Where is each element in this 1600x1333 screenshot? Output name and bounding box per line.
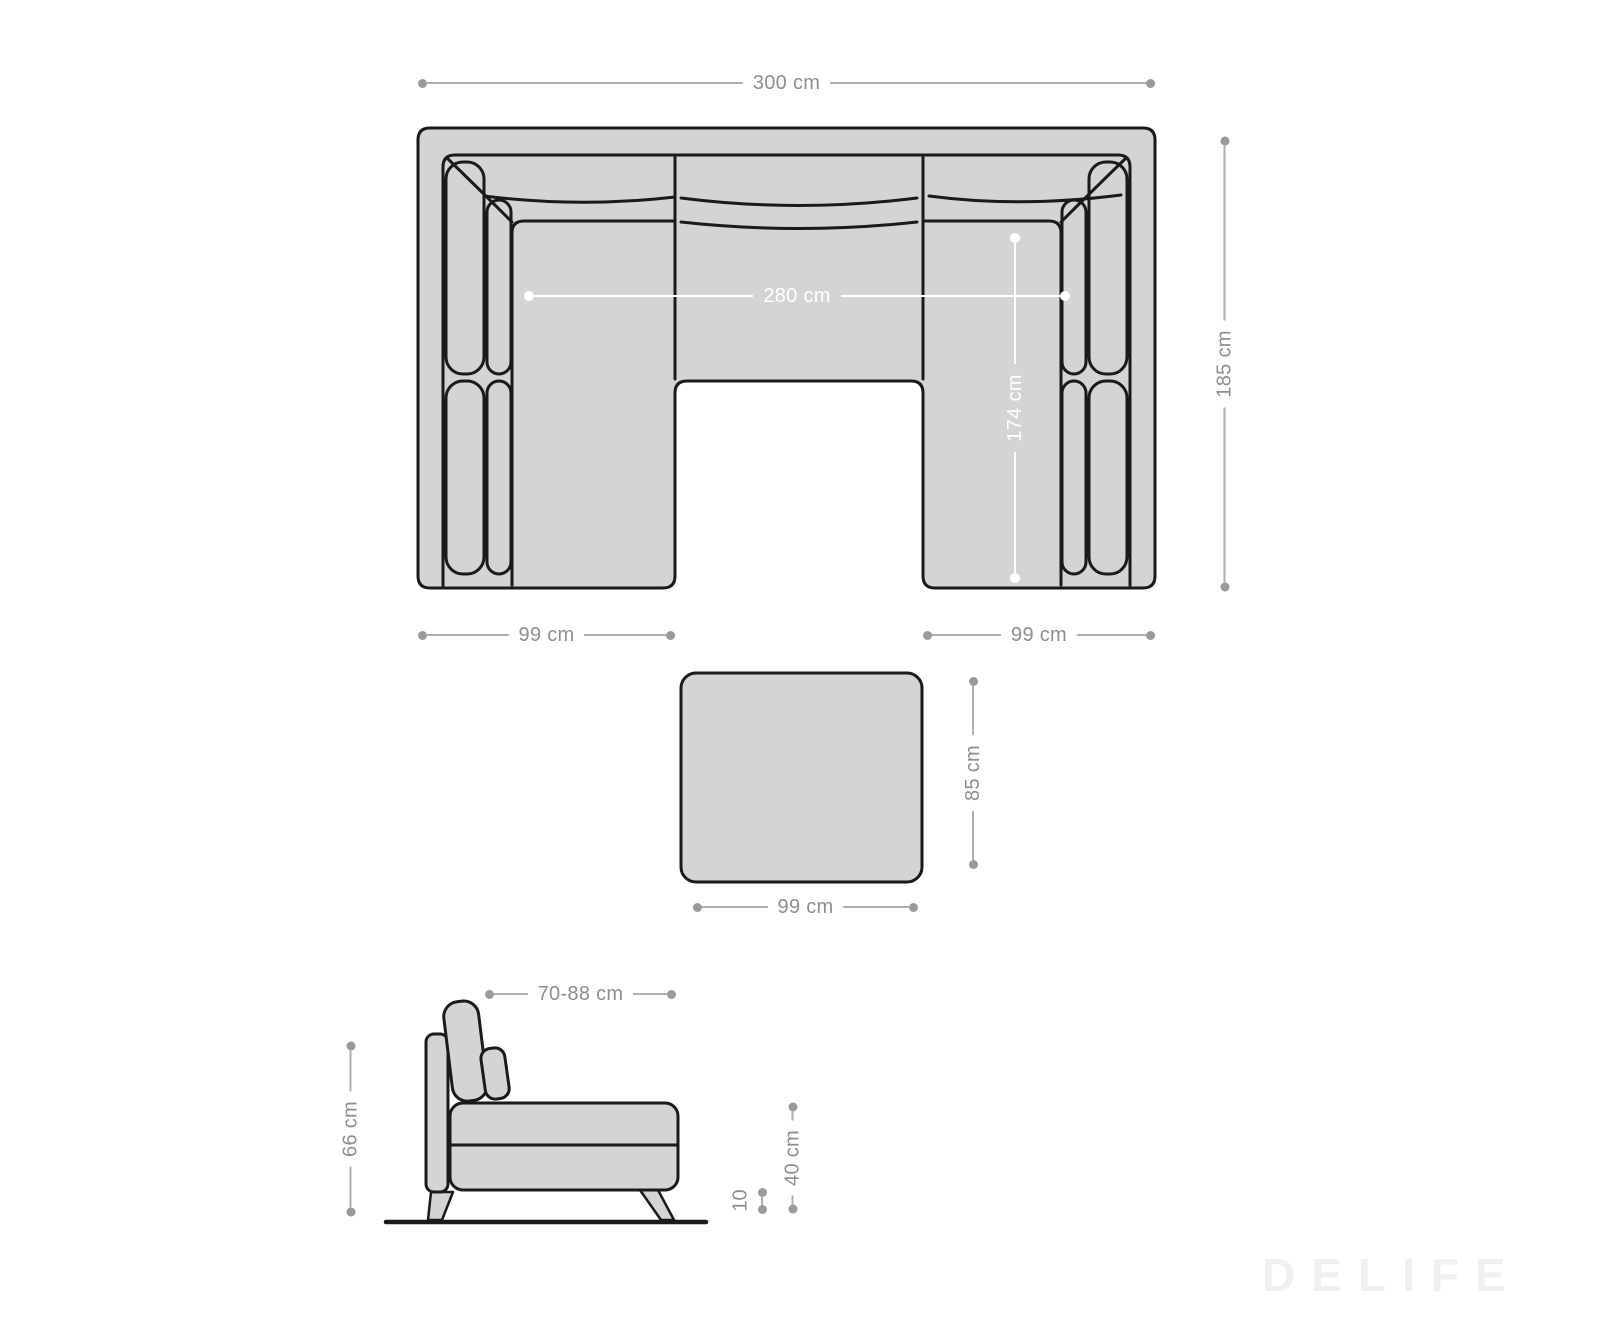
dim-line bbox=[702, 906, 768, 908]
dim-line bbox=[534, 295, 753, 297]
dim-sofa-overall-depth: 185 cm bbox=[1214, 137, 1236, 592]
dim-sofa-inner-depth: 174 cm bbox=[1004, 233, 1026, 583]
dim-label: 70-88 cm bbox=[528, 983, 634, 1006]
dim-endpoint-dot bbox=[909, 903, 918, 912]
sofa-outline bbox=[418, 128, 1155, 588]
dim-line bbox=[427, 634, 509, 636]
dim-line bbox=[1224, 145, 1226, 320]
stool-outline bbox=[681, 673, 922, 882]
dim-sofa-inner-width: 280 cm bbox=[524, 285, 1070, 307]
dim-label: 99 cm bbox=[509, 624, 585, 647]
dim-line bbox=[1224, 408, 1226, 583]
dim-line bbox=[792, 1112, 794, 1121]
dim-endpoint-dot bbox=[346, 1208, 355, 1217]
dim-leg-height-line bbox=[751, 1188, 773, 1214]
dim-stool-width: 99 cm bbox=[693, 896, 918, 918]
dim-left-recamiere-width: 99 cm bbox=[418, 624, 675, 646]
dim-line bbox=[494, 993, 528, 995]
brand-watermark: DELIFE bbox=[1262, 1248, 1522, 1302]
dim-endpoint-dot bbox=[346, 1042, 355, 1051]
dim-endpoint-dot bbox=[1146, 631, 1155, 640]
dim-endpoint-dot bbox=[758, 1188, 767, 1197]
dim-endpoint-dot bbox=[1060, 291, 1070, 301]
dim-label: 99 cm bbox=[768, 896, 844, 919]
dim-line bbox=[584, 634, 666, 636]
dim-line bbox=[1014, 243, 1016, 364]
rear-leg bbox=[428, 1192, 453, 1220]
stool-top-view-drawing bbox=[681, 673, 922, 882]
dim-line bbox=[633, 993, 667, 995]
dim-label: 99 cm bbox=[1001, 624, 1077, 647]
dim-label: 85 cm bbox=[962, 735, 985, 811]
dim-endpoint-dot bbox=[1010, 233, 1020, 243]
dim-endpoint-dot bbox=[485, 990, 494, 999]
dim-label: 185 cm bbox=[1213, 320, 1236, 407]
dim-line bbox=[427, 82, 743, 84]
back-panel bbox=[426, 1034, 448, 1192]
dim-label: 280 cm bbox=[753, 285, 840, 308]
dim-endpoint-dot bbox=[524, 291, 534, 301]
dim-endpoint-dot bbox=[667, 990, 676, 999]
dim-line bbox=[830, 82, 1146, 84]
dim-line bbox=[350, 1051, 352, 1092]
dim-endpoint-dot bbox=[418, 79, 427, 88]
dim-label: 300 cm bbox=[743, 72, 830, 95]
dim-line bbox=[841, 295, 1060, 297]
dim-endpoint-dot bbox=[418, 631, 427, 640]
dim-line bbox=[761, 1197, 763, 1205]
dim-endpoint-dot bbox=[969, 677, 978, 686]
dim-right-recamiere-width: 99 cm bbox=[923, 624, 1155, 646]
dim-endpoint-dot bbox=[788, 1205, 797, 1214]
dim-seat-depth-range: 70-88 cm bbox=[485, 983, 676, 1005]
dim-sofa-overall-width: 300 cm bbox=[418, 72, 1155, 94]
dim-endpoint-dot bbox=[1010, 573, 1020, 583]
sofa-top-view-drawing bbox=[418, 128, 1155, 588]
dim-seat-height: 40 cm bbox=[782, 1103, 804, 1214]
dim-endpoint-dot bbox=[1220, 136, 1229, 145]
dim-endpoint-dot bbox=[758, 1205, 767, 1214]
dim-line bbox=[350, 1167, 352, 1208]
dim-leg-height-label: 10 bbox=[730, 1173, 753, 1229]
dim-label: 174 cm bbox=[1004, 364, 1027, 451]
dim-line bbox=[972, 811, 974, 860]
dim-stool-depth: 85 cm bbox=[962, 677, 984, 869]
dim-endpoint-dot bbox=[1146, 79, 1155, 88]
dim-line bbox=[932, 634, 1001, 636]
dim-endpoint-dot bbox=[923, 631, 932, 640]
dim-endpoint-dot bbox=[788, 1103, 797, 1112]
dimension-diagram-page: 300 cm 185 cm 280 cm 174 cm 99 cm 99 cm … bbox=[0, 0, 1600, 1333]
front-leg bbox=[640, 1190, 674, 1220]
dim-line bbox=[1077, 634, 1146, 636]
dim-back-height: 66 cm bbox=[340, 1042, 362, 1217]
dim-line bbox=[1014, 452, 1016, 573]
dim-label: 66 cm bbox=[339, 1091, 362, 1167]
dim-endpoint-dot bbox=[666, 631, 675, 640]
dim-line bbox=[843, 906, 909, 908]
lumbar-cushion bbox=[480, 1047, 511, 1101]
dim-endpoint-dot bbox=[969, 860, 978, 869]
dim-endpoint-dot bbox=[693, 903, 702, 912]
sofa-side-view-drawing bbox=[386, 999, 706, 1222]
dim-endpoint-dot bbox=[1220, 583, 1229, 592]
dim-line bbox=[792, 1196, 794, 1205]
dim-label: 40 cm bbox=[781, 1120, 804, 1196]
dim-line bbox=[972, 686, 974, 735]
